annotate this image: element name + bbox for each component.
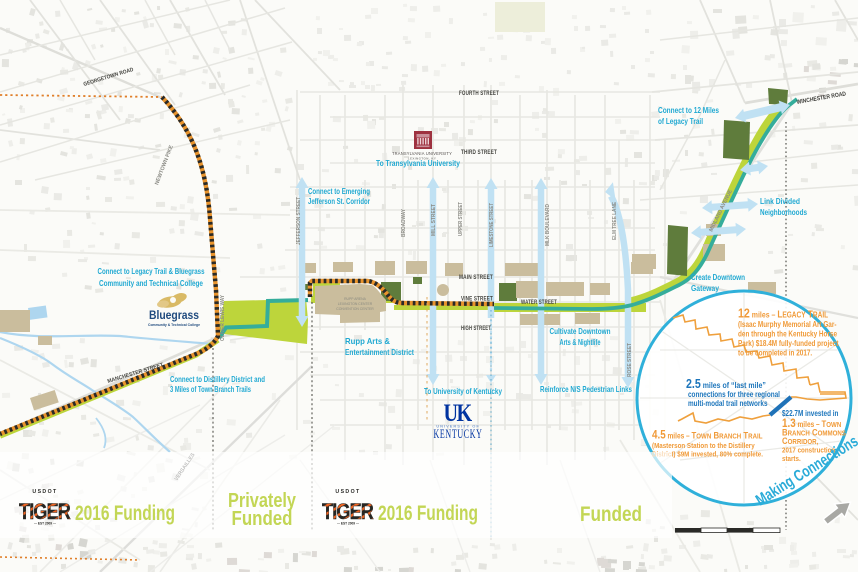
svg-text:Arts & Nightlife: Arts & Nightlife — [560, 337, 601, 347]
svg-text:MLK BOULEVARD: MLK BOULEVARD — [545, 204, 551, 246]
svg-text:Community & Technical College: Community & Technical College — [148, 322, 201, 327]
svg-text:Link Divided: Link Divided — [760, 196, 800, 206]
svg-text:··· EST 2009 ···: ··· EST 2009 ··· — [34, 522, 56, 526]
svg-text:(Masterson Station to the Dist: (Masterson Station to the Distillery — [652, 443, 755, 451]
svg-text:Cultivate Downtown: Cultivate Downtown — [550, 326, 611, 336]
svg-text:ELM TREE LANE: ELM TREE LANE — [612, 202, 618, 240]
svg-text:Reinforce N/S Pedestrian Links: Reinforce N/S Pedestrian Links — [540, 384, 632, 394]
svg-text:JEFFERSON STREET: JEFFERSON STREET — [296, 196, 302, 245]
svg-text:connections for three regional: connections for three regional — [688, 390, 780, 399]
svg-text:Connect to Emerging: Connect to Emerging — [308, 186, 370, 196]
svg-text:Rupp Arts &: Rupp Arts & — [345, 336, 390, 346]
svg-text:to be completed in 2017.: to be completed in 2017. — [738, 349, 812, 358]
svg-text:OLIVER LEWIS WAY: OLIVER LEWIS WAY — [220, 295, 226, 341]
svg-text:3 Miles of Town Branch Trails: 3 Miles of Town Branch Trails — [170, 384, 251, 394]
svg-text:TIGER: TIGER — [19, 499, 71, 524]
svg-text:LIMESTONE STREET: LIMESTONE STREET — [489, 202, 495, 247]
svg-text:Funded: Funded — [232, 508, 293, 530]
svg-text:BROADWAY: BROADWAY — [401, 209, 407, 237]
svg-text:ROSE STREET: ROSE STREET — [627, 342, 633, 377]
svg-text:of Legacy Trail: of Legacy Trail — [658, 116, 703, 126]
svg-text:WATER STREET: WATER STREET — [521, 300, 557, 306]
svg-text:KENTUCKY: KENTUCKY — [434, 427, 483, 441]
svg-text:MAIN STREET: MAIN STREET — [459, 275, 493, 281]
svg-text:Entertainment District: Entertainment District — [345, 347, 414, 357]
svg-text:LEXINGTON, KY: LEXINGTON, KY — [408, 157, 436, 161]
svg-text:THIRD STREET: THIRD STREET — [461, 150, 497, 156]
svg-text:(Isaac Murphy Memorial Art Gar: (Isaac Murphy Memorial Art Gar- — [738, 320, 837, 329]
svg-text:Gateway: Gateway — [691, 283, 719, 293]
svg-text:Jefferson St. Corridor: Jefferson St. Corridor — [308, 196, 370, 206]
svg-text:USDOT: USDOT — [335, 489, 360, 495]
svg-text:2016 Funding: 2016 Funding — [378, 502, 478, 525]
svg-text:den through the Kentucky Horse: den through the Kentucky Horse — [738, 330, 837, 339]
svg-text:MILL STREET: MILL STREET — [431, 203, 437, 236]
svg-text:multi-modal trail networks: multi-modal trail networks — [688, 399, 768, 408]
svg-text:CONVENTION CENTER: CONVENTION CENTER — [336, 307, 374, 311]
svg-text:Park) $18.4M fully-funded proj: Park) $18.4M fully-funded project — [738, 339, 839, 348]
svg-text:TIGER: TIGER — [322, 499, 374, 524]
svg-text:USDOT: USDOT — [32, 489, 57, 495]
svg-text:Connect to 12 Miles: Connect to 12 Miles — [658, 105, 719, 115]
svg-text:Neighborhoods: Neighborhoods — [760, 207, 807, 217]
svg-text:starts.: starts. — [782, 456, 801, 464]
svg-text:2016 Funding: 2016 Funding — [75, 502, 175, 525]
svg-text:Connect to Legacy Trail & Blue: Connect to Legacy Trail & Bluegrass — [98, 266, 205, 276]
svg-text:··· EST 2009 ···: ··· EST 2009 ··· — [337, 522, 359, 526]
svg-text:Community and Technical Colleg: Community and Technical College — [99, 278, 203, 288]
svg-text:TRANSYLVANIA UNIVERSITY: TRANSYLVANIA UNIVERSITY — [392, 151, 452, 156]
svg-text:UPPER STREET: UPPER STREET — [458, 201, 464, 236]
svg-text:LEXINGTON CENTER: LEXINGTON CENTER — [338, 302, 373, 306]
svg-text:VINE STREET: VINE STREET — [461, 297, 493, 303]
svg-text:Connect to Distillery District: Connect to Distillery District and — [170, 374, 265, 384]
svg-text:FOURTH STREET: FOURTH STREET — [459, 91, 499, 97]
svg-text:Create Downtown: Create Downtown — [691, 272, 745, 282]
svg-text:Bluegrass: Bluegrass — [149, 308, 199, 322]
svg-text:To University of Kentucky: To University of Kentucky — [424, 386, 502, 396]
svg-text:RUPP ARENA: RUPP ARENA — [344, 297, 367, 301]
svg-text:HIGH STREET: HIGH STREET — [461, 326, 491, 332]
svg-text:Funded: Funded — [580, 503, 642, 526]
